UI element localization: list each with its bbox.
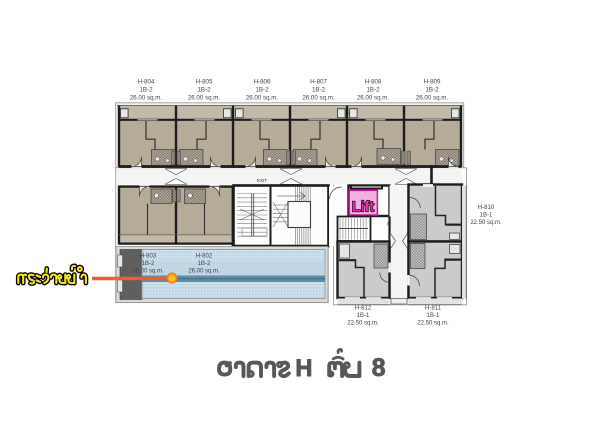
svg-text:H-810: H-810 — [478, 205, 495, 211]
svg-text:26.00 sq.m.: 26.00 sq.m. — [188, 269, 220, 275]
svg-text:H-802: H-802 — [196, 254, 213, 260]
svg-text:1B-2: 1B-2 — [366, 87, 380, 94]
svg-text:1B-2: 1B-2 — [142, 261, 155, 267]
svg-text:H-812: H-812 — [355, 306, 372, 312]
svg-text:1B-1: 1B-1 — [427, 313, 440, 319]
svg-text:1B-1: 1B-1 — [357, 313, 370, 319]
svg-text:26.00 sq.m.: 26.00 sq.m. — [132, 269, 164, 275]
svg-text:H-804: H-804 — [138, 79, 155, 86]
svg-text:26.00 sq.m.: 26.00 sq.m. — [357, 95, 390, 102]
svg-text:H-803: H-803 — [140, 254, 157, 260]
svg-text:26.00 sq.m.: 26.00 sq.m. — [130, 95, 163, 102]
svg-text:H-805: H-805 — [196, 79, 213, 86]
svg-text:H: H — [295, 356, 312, 382]
svg-text:26.00 sq.m.: 26.00 sq.m. — [416, 95, 449, 102]
svg-text:1B-1: 1B-1 — [480, 213, 493, 219]
svg-text:1B-2: 1B-2 — [198, 261, 211, 267]
svg-text:1B-2: 1B-2 — [197, 87, 211, 94]
svg-text:26.00 sq.m.: 26.00 sq.m. — [188, 95, 221, 102]
svg-text:H-808: H-808 — [365, 79, 382, 86]
svg-text:22.50 sq.m.: 22.50 sq.m. — [347, 321, 379, 327]
svg-text:26.00 sq.m.: 26.00 sq.m. — [246, 95, 279, 102]
svg-text:H-806: H-806 — [254, 79, 271, 86]
svg-text:22.50 sq.m.: 22.50 sq.m. — [417, 321, 449, 327]
svg-text:H-809: H-809 — [424, 79, 441, 86]
svg-text:H-811: H-811 — [425, 306, 442, 312]
svg-text:1B-2: 1B-2 — [255, 87, 269, 94]
svg-text:H-807: H-807 — [310, 79, 327, 86]
svg-text:26.00 sq.m.: 26.00 sq.m. — [302, 95, 335, 102]
svg-text:Lift: Lift — [352, 200, 375, 216]
svg-text:1B-2: 1B-2 — [425, 87, 439, 94]
svg-text:8: 8 — [372, 355, 386, 382]
svg-text:1B-2: 1B-2 — [139, 87, 153, 94]
svg-text:1B-2: 1B-2 — [312, 87, 326, 94]
svg-text:22.50 sq.m.: 22.50 sq.m. — [470, 220, 502, 226]
svg-text:EXIT: EXIT — [257, 178, 267, 183]
